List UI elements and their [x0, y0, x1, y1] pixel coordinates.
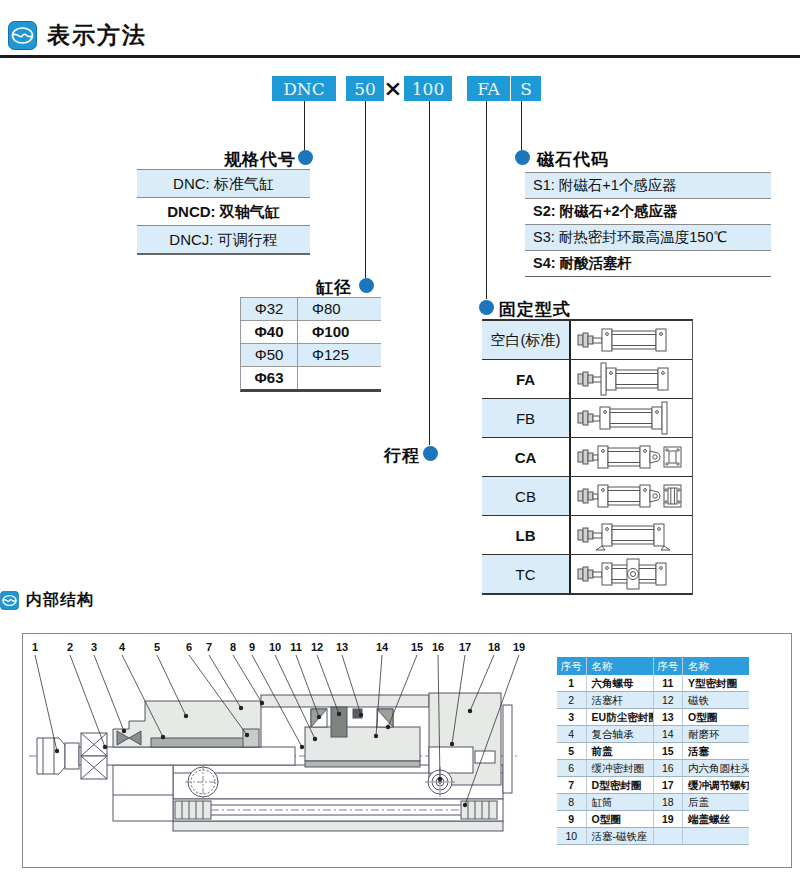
page-title: 表示方法 — [47, 20, 147, 51]
bore-row: Φ40Φ100 — [241, 320, 381, 343]
connector-line — [365, 101, 366, 278]
mount-row: FB — [482, 399, 692, 438]
callout-number: 7 — [206, 641, 212, 653]
callout-dot — [184, 714, 188, 718]
parts-name: 缓冲密封圈 — [587, 760, 654, 776]
parts-row: 7D型密封圈17缓冲调节螺钉 — [557, 777, 749, 794]
mount-code: FA — [482, 360, 571, 398]
cylinder-mount-icon — [576, 557, 688, 591]
label-mounting-type: 固定型式 — [499, 298, 571, 321]
callout-number: 11 — [290, 641, 302, 653]
callout-number: 3 — [91, 641, 97, 653]
parts-no: 8 — [557, 794, 587, 810]
label-magnet-code: 磁石代码 — [537, 148, 609, 171]
parts-row: 5前盖15活塞 — [557, 743, 749, 760]
brand-icon — [8, 21, 37, 50]
parts-no — [654, 828, 684, 844]
header-rule — [0, 55, 800, 58]
parts-row: 6缓冲密封圈16内六角圆柱头螺钉 — [557, 760, 749, 777]
mount-row: TC — [482, 555, 692, 593]
parts-no: 5 — [557, 743, 587, 759]
callout-dot — [386, 725, 390, 729]
callout-number: 5 — [154, 641, 160, 653]
label-bore: 缸径 — [280, 276, 352, 299]
callout-dot — [438, 777, 442, 781]
parts-no: 3 — [557, 709, 587, 725]
mount-code: TC — [482, 555, 571, 593]
parts-header-cell: 名称 — [587, 657, 654, 675]
magnet-code-table: S1: 附磁石+1个感应器S2: 附磁石+2个感应器S3: 耐热密封环最高温度1… — [525, 172, 771, 277]
mount-row: 空白(标准) — [482, 321, 692, 360]
callout-dot — [313, 737, 317, 741]
callout-number: 18 — [488, 641, 500, 653]
parts-name: D型密封圈 — [587, 777, 654, 793]
parts-no: 1 — [557, 675, 587, 691]
callout-number: 12 — [311, 641, 323, 653]
callout-dot — [245, 733, 249, 737]
callout-leader — [233, 655, 262, 703]
parts-no: 13 — [654, 709, 684, 725]
parts-header-cell: 名称 — [683, 657, 749, 675]
parts-no: 18 — [654, 794, 684, 810]
cylinder-cross-section-drawing: 12345678910111213141516171819 — [25, 635, 565, 864]
callout-dot — [337, 712, 341, 716]
connector-line — [486, 101, 487, 299]
connector-dot — [359, 278, 374, 293]
callout-dot — [317, 715, 321, 719]
spec-row: DNCD: 双轴气缸 — [137, 197, 310, 225]
callout-dot — [239, 706, 243, 710]
callout-leader — [94, 655, 124, 731]
parts-name: 耐磨环 — [683, 726, 749, 742]
parts-row: 9O型圈19端盖螺丝 — [557, 811, 749, 828]
parts-header-cell: 序号 — [654, 657, 684, 675]
callout-leader — [35, 655, 57, 751]
parts-row: 2活塞杆12磁铁 — [557, 692, 749, 709]
parts-row: 8缸筒18后盖 — [557, 794, 749, 811]
mount-row: CA — [482, 438, 692, 477]
connector-line — [429, 101, 430, 445]
mount-code: FB — [482, 399, 571, 437]
callout-number: 4 — [119, 641, 126, 653]
callout-leader — [209, 655, 241, 708]
mount-diagram-rear-clevis-double — [571, 477, 692, 515]
cylinder-mount-icon — [576, 323, 688, 357]
parts-header-row: 序号名称序号名称 — [557, 657, 749, 675]
order-box-model: DNC — [272, 76, 336, 101]
parts-name: 六角螺母 — [587, 675, 654, 691]
mount-code: CA — [482, 438, 571, 476]
callout-dot — [450, 742, 454, 746]
connector-dot — [423, 446, 438, 461]
parts-name: 活塞杆 — [587, 692, 654, 708]
callout-number: 1 — [32, 641, 38, 653]
callout-leader — [388, 655, 417, 727]
spec-code-table: DNC: 标准气缸DNCD: 双轴气缸DNCJ: 可调行程 — [137, 169, 310, 255]
parts-name: 活塞-磁铁座 — [587, 828, 654, 844]
parts-no: 11 — [654, 675, 684, 691]
parts-no: 2 — [557, 692, 587, 708]
callout-number: 15 — [411, 641, 423, 653]
mounting-type-table: 空白(标准)FAFBCACBLBTC — [482, 319, 693, 595]
mount-diagram-basic — [571, 321, 692, 359]
parts-name: O型圈 — [683, 709, 749, 725]
connector-dot — [479, 300, 494, 315]
callout-number: 9 — [249, 641, 255, 653]
parts-name: 活塞 — [683, 743, 749, 759]
order-box-stroke: 100 — [404, 76, 452, 101]
cylinder-mount-icon — [576, 401, 688, 435]
bore-cell-left: Φ63 — [241, 367, 298, 389]
callout-number: 13 — [336, 641, 348, 653]
bore-row: Φ50Φ125 — [241, 343, 381, 366]
parts-no: 10 — [557, 828, 587, 844]
connector-line — [521, 101, 522, 150]
bore-table: Φ32Φ80Φ40Φ100Φ50Φ125Φ63 — [240, 297, 381, 392]
callout-dot — [260, 701, 264, 705]
parts-no: 7 — [557, 777, 587, 793]
parts-no: 16 — [654, 760, 684, 776]
cylinder-mount-icon — [576, 518, 688, 552]
callout-dot — [300, 745, 304, 749]
callout-dot — [468, 709, 472, 713]
connector-dot — [515, 150, 530, 165]
parts-name: 复合轴承 — [587, 726, 654, 742]
callout-dot — [463, 803, 467, 807]
mount-diagram-foot — [571, 516, 692, 554]
magnet-row: S3: 耐热密封环最高温度150℃ — [525, 224, 771, 250]
parts-name: 端盖螺丝 — [683, 811, 749, 827]
callout-dot — [103, 745, 107, 749]
parts-row: 4复合轴承14耐磨环 — [557, 726, 749, 743]
spec-row: DNCJ: 可调行程 — [137, 225, 310, 253]
cylinder-mount-icon — [576, 479, 688, 513]
callout-number: 14 — [376, 641, 389, 653]
parts-name: 磁铁 — [683, 692, 749, 708]
callout-number: 17 — [459, 641, 471, 653]
mount-code: LB — [482, 516, 571, 554]
parts-name — [683, 828, 749, 844]
callout-dot — [359, 713, 363, 717]
parts-no: 6 — [557, 760, 587, 776]
mount-diagram-rear-flange — [571, 399, 692, 437]
mount-row: FA — [482, 360, 692, 399]
callout-number: 2 — [67, 641, 73, 653]
section-header-internal-structure: 内部结构 — [0, 590, 94, 611]
cylinder-mount-icon — [576, 362, 688, 396]
bore-cell-left: Φ32 — [241, 298, 298, 320]
bore-row: Φ32Φ80 — [241, 297, 381, 320]
parts-row: 3EU防尘密封圈13O型圈 — [557, 709, 749, 726]
mount-code: 空白(标准) — [482, 321, 571, 359]
order-box-magnet: S — [511, 76, 541, 101]
cylinder-mount-icon — [576, 440, 688, 474]
mount-diagram-trunnion — [571, 555, 692, 593]
bore-row: Φ63 — [241, 366, 381, 389]
brand-icon-small — [0, 591, 19, 610]
bore-cell-right: Φ80 — [298, 298, 381, 320]
callout-number: 19 — [513, 641, 525, 653]
connector-line — [304, 101, 305, 150]
parts-no: 4 — [557, 726, 587, 742]
callout-dot — [161, 735, 165, 739]
magnet-row: S1: 附磁石+1个感应器 — [525, 172, 771, 198]
callout-dot — [122, 729, 126, 733]
label-stroke: 行程 — [348, 444, 420, 467]
mount-row: CB — [482, 477, 692, 516]
bore-cell-right: Φ125 — [298, 344, 381, 366]
parts-name: EU防尘密封圈 — [587, 709, 654, 725]
order-box-mount: FA — [467, 76, 510, 101]
parts-no: 15 — [654, 743, 684, 759]
parts-name: 缸筒 — [587, 794, 654, 810]
parts-row: 10活塞-磁铁座 — [557, 828, 749, 845]
bore-cell-left: Φ50 — [241, 344, 298, 366]
parts-no: 12 — [654, 692, 684, 708]
callout-number: 6 — [186, 641, 192, 653]
callout-leader — [296, 655, 319, 717]
parts-name: 内六角圆柱头螺钉 — [683, 760, 749, 776]
parts-no: 9 — [557, 811, 587, 827]
mount-row: LB — [482, 516, 692, 555]
bore-cell-right — [298, 367, 381, 389]
callout-number: 10 — [269, 641, 281, 653]
mount-diagram-rear-clevis — [571, 438, 692, 476]
magnet-row: S2: 附磁石+2个感应器 — [525, 198, 771, 224]
callout-dot — [55, 749, 59, 753]
callout-number: 8 — [230, 641, 236, 653]
mount-diagram-front-flange — [571, 360, 692, 398]
parts-name: 后盖 — [683, 794, 749, 810]
parts-name: O型圈 — [587, 811, 654, 827]
catalog-page: 表示方法 规格代号 缸径 行程 磁石代码 固定型式 DNC: 标准气缸DNCD:… — [0, 0, 800, 876]
parts-name: Y型密封圈 — [683, 675, 749, 691]
parts-no: 14 — [654, 726, 684, 742]
spec-row: DNC: 标准气缸 — [137, 169, 310, 197]
section-header-representation: 表示方法 — [8, 20, 147, 51]
bore-cell-right: Φ100 — [298, 321, 381, 343]
parts-row: 1六角螺母11Y型密封圈 — [557, 675, 749, 692]
internal-structure-box: 12345678910111213141516171819 序号名称序号名称1六… — [22, 633, 792, 868]
order-box-bore: 50 — [346, 76, 384, 101]
bore-cell-left: Φ40 — [241, 321, 298, 343]
callout-number: 16 — [432, 641, 444, 653]
parts-no: 17 — [654, 777, 684, 793]
connector-dot — [298, 150, 313, 165]
internal-structure-title: 内部结构 — [26, 590, 94, 611]
callout-dot — [374, 734, 378, 738]
parts-header-cell: 序号 — [557, 657, 587, 675]
mount-code: CB — [482, 477, 571, 515]
parts-table: 序号名称序号名称1六角螺母11Y型密封圈2活塞杆12磁铁3EU防尘密封圈13O型… — [557, 657, 749, 845]
magnet-row: S4: 耐酸活塞杆 — [525, 250, 771, 276]
parts-name: 前盖 — [587, 743, 654, 759]
parts-name: 缓冲调节螺钉 — [683, 777, 749, 793]
parts-no: 19 — [654, 811, 684, 827]
order-separator: × — [382, 72, 404, 102]
label-spec-code: 规格代号 — [150, 148, 296, 171]
